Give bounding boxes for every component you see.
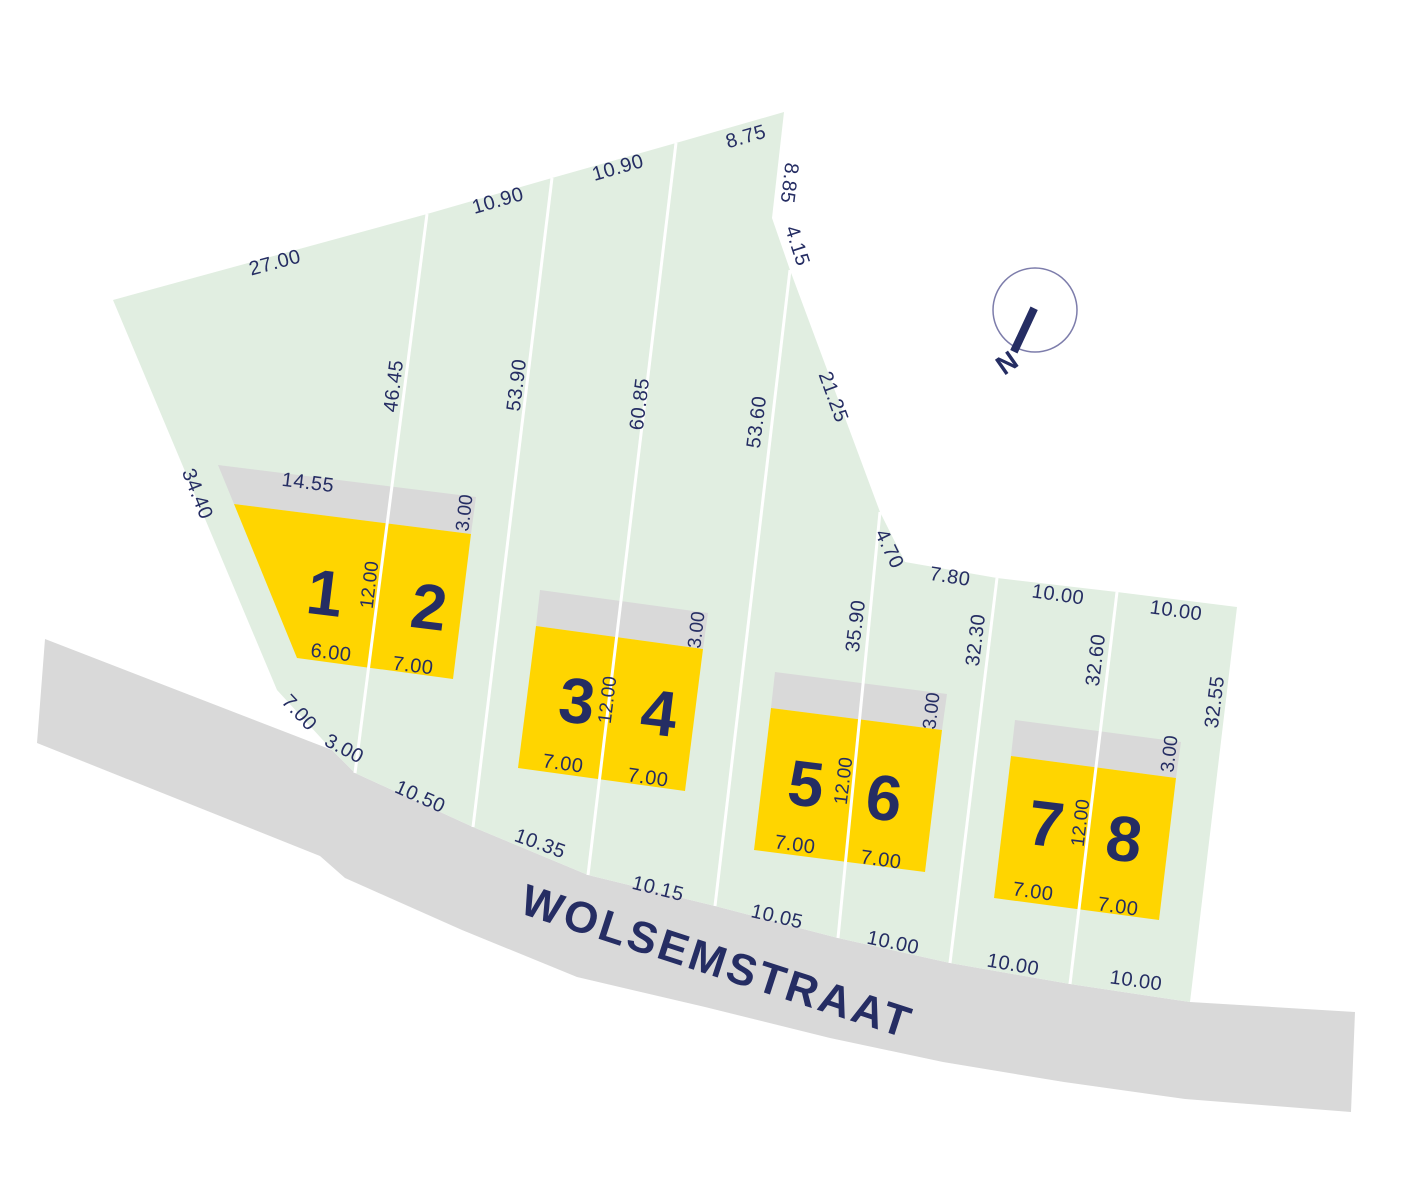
north-needle <box>1010 307 1038 354</box>
dimension-label: 3.00 <box>1157 734 1182 773</box>
dimension-label: 3.00 <box>684 610 709 649</box>
dimension-label: 8.85 <box>776 161 803 204</box>
dimension-label: 3.00 <box>452 493 477 532</box>
site-plan: 27.00 10.90 10.90 8.75 8.85 4.15 21.25 4… <box>0 0 1407 1200</box>
north-compass: N <box>990 268 1077 381</box>
dimension-label: 3.00 <box>919 691 944 730</box>
